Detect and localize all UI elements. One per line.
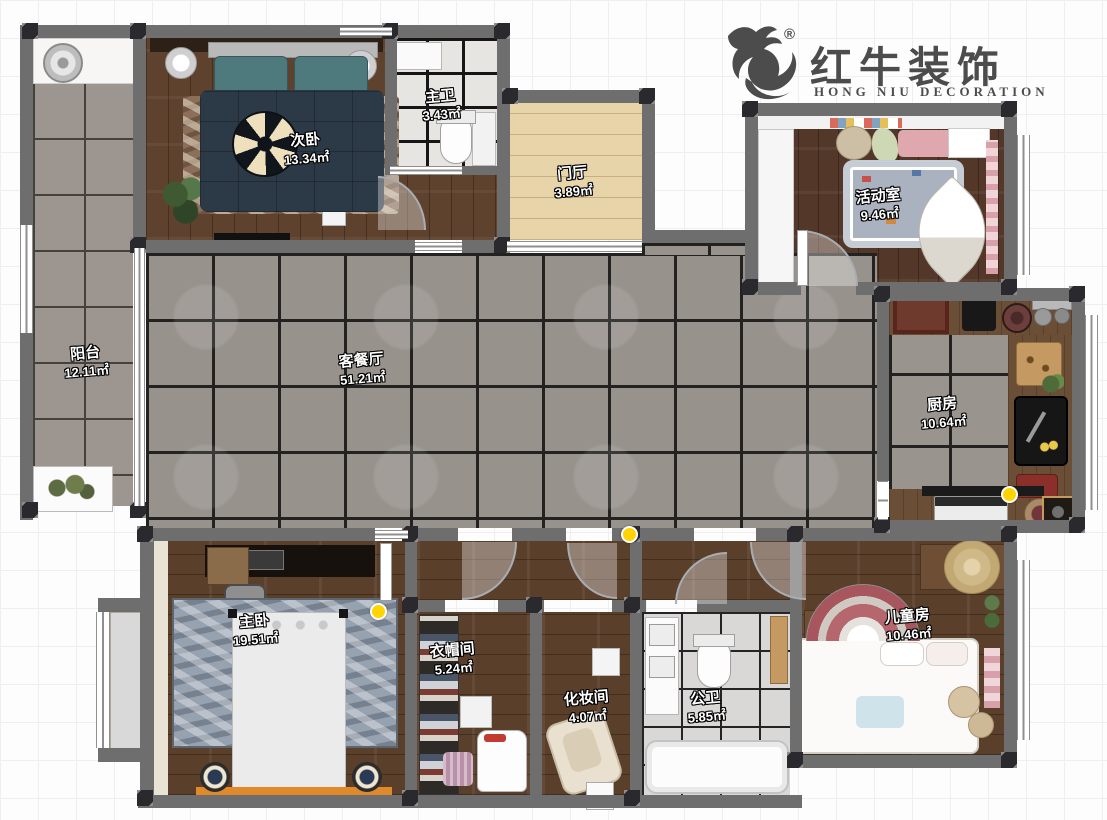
activity-white-box [948, 128, 990, 158]
master-door-leaf[interactable] [380, 543, 392, 601]
window [1085, 315, 1098, 510]
brand-subtitle: HONG NIU DECORATION [814, 84, 1049, 100]
column [787, 526, 803, 542]
kitchen-lemons [1038, 438, 1060, 456]
balcony-floor [33, 82, 133, 506]
wall [1004, 103, 1017, 295]
coffee-machine-icon [962, 297, 996, 331]
kitchen-herbs [1042, 372, 1064, 396]
kids-pillow-1 [880, 642, 924, 666]
column [526, 597, 542, 613]
activity-pink-ladder [986, 140, 998, 274]
kids-pouf-2 [968, 712, 994, 738]
wall [745, 103, 758, 295]
master-speaker-right [352, 762, 382, 792]
wall [642, 90, 655, 243]
kids-blanket [856, 696, 904, 728]
column [1001, 752, 1017, 768]
kids-plant-decor [984, 594, 1000, 638]
activity-toys-strip [830, 118, 902, 128]
master-speaker-left [200, 762, 230, 792]
column [874, 286, 890, 302]
registered-mark: ® [784, 26, 795, 43]
wall [138, 795, 802, 808]
column [1001, 279, 1017, 295]
threshold [415, 242, 462, 251]
living-floor-notch [642, 243, 758, 255]
column [624, 597, 640, 613]
wall [98, 598, 142, 612]
wall [138, 528, 375, 541]
floor-plan: ® 红牛装饰 HONG NIU DECORATION [0, 0, 1107, 820]
column [402, 790, 418, 806]
bay-window-panel [110, 612, 144, 750]
kids-pillow-2 [926, 642, 968, 666]
column [1069, 286, 1085, 302]
kitchen-red-cabinet [893, 296, 949, 334]
wall [790, 755, 1017, 768]
wall [804, 528, 1017, 541]
threshold [375, 530, 408, 539]
wall [642, 230, 758, 243]
foyer-threshold [507, 241, 642, 252]
wall [25, 25, 508, 38]
bay-window [96, 612, 110, 748]
column [22, 23, 38, 39]
marker-dot [370, 603, 387, 620]
window [340, 27, 392, 36]
washing-machine-icon [43, 43, 83, 83]
bath2-toilet-tank [693, 634, 735, 647]
kitchen-pot-1 [1034, 308, 1052, 326]
column [624, 790, 640, 806]
master-wall-strip [154, 541, 168, 795]
column [1001, 526, 1017, 542]
marker-dot [1001, 486, 1018, 503]
activity-toy-car-blue [912, 170, 921, 176]
column [137, 790, 153, 806]
wall [140, 528, 154, 808]
wall [877, 288, 1085, 301]
bedroom2-lamp-left [165, 47, 197, 79]
marker-dot [621, 526, 638, 543]
wall [505, 90, 655, 103]
kids-rattan-rug [944, 540, 1000, 594]
column [22, 502, 38, 518]
bath2-sink-2 [649, 656, 675, 678]
column [787, 752, 803, 768]
window [20, 225, 33, 333]
bedroom2-tv [214, 233, 290, 240]
kitchen-appliance-dial [1052, 506, 1064, 518]
column [402, 597, 418, 613]
bath2-sink-1 [649, 624, 675, 646]
closet-box [460, 696, 492, 728]
makeup-box [592, 648, 620, 676]
wall [512, 528, 566, 541]
master-bed-post-right [339, 609, 348, 618]
kitchen-grinder [1002, 303, 1032, 333]
activity-pouf [836, 126, 872, 160]
window [1017, 135, 1030, 275]
wall [630, 541, 642, 808]
column [130, 23, 146, 39]
window [1017, 560, 1030, 740]
master-cabinet [207, 547, 249, 585]
wall [417, 600, 445, 612]
activity-cabinet-left [758, 129, 794, 287]
bath2-toilet [697, 640, 731, 688]
activity-toy-car-red [862, 176, 871, 182]
column [494, 23, 510, 39]
range-hood [922, 486, 1044, 496]
wall [133, 25, 146, 243]
wall [877, 301, 889, 481]
master-bath-sliding-door[interactable] [390, 166, 462, 175]
brand-logo: ® 红牛装饰 HONG NIU DECORATION [722, 18, 1042, 113]
wall [98, 748, 142, 762]
column [137, 526, 153, 542]
bath2-bathtub [645, 740, 789, 794]
kitchen-threshold [878, 481, 888, 520]
wall [462, 166, 497, 175]
garment-steamer-handle [484, 734, 506, 742]
column [639, 88, 655, 104]
wall [497, 25, 510, 253]
wall [138, 240, 415, 253]
master-desk-monitor [248, 550, 284, 570]
wall [1072, 288, 1085, 533]
kitchen-pot-2 [1054, 308, 1070, 324]
activity-door-leaf[interactable] [797, 230, 808, 286]
bath2-shelf [770, 616, 788, 684]
column [1069, 517, 1085, 533]
balcony-sliding-door[interactable] [134, 248, 145, 506]
balcony-plant [39, 470, 99, 506]
column [742, 279, 758, 295]
wall [1004, 528, 1017, 768]
kids-pink-decor [984, 648, 1000, 708]
master-bath-vanity [394, 42, 442, 70]
closet-basket [443, 752, 473, 786]
column [502, 88, 518, 104]
